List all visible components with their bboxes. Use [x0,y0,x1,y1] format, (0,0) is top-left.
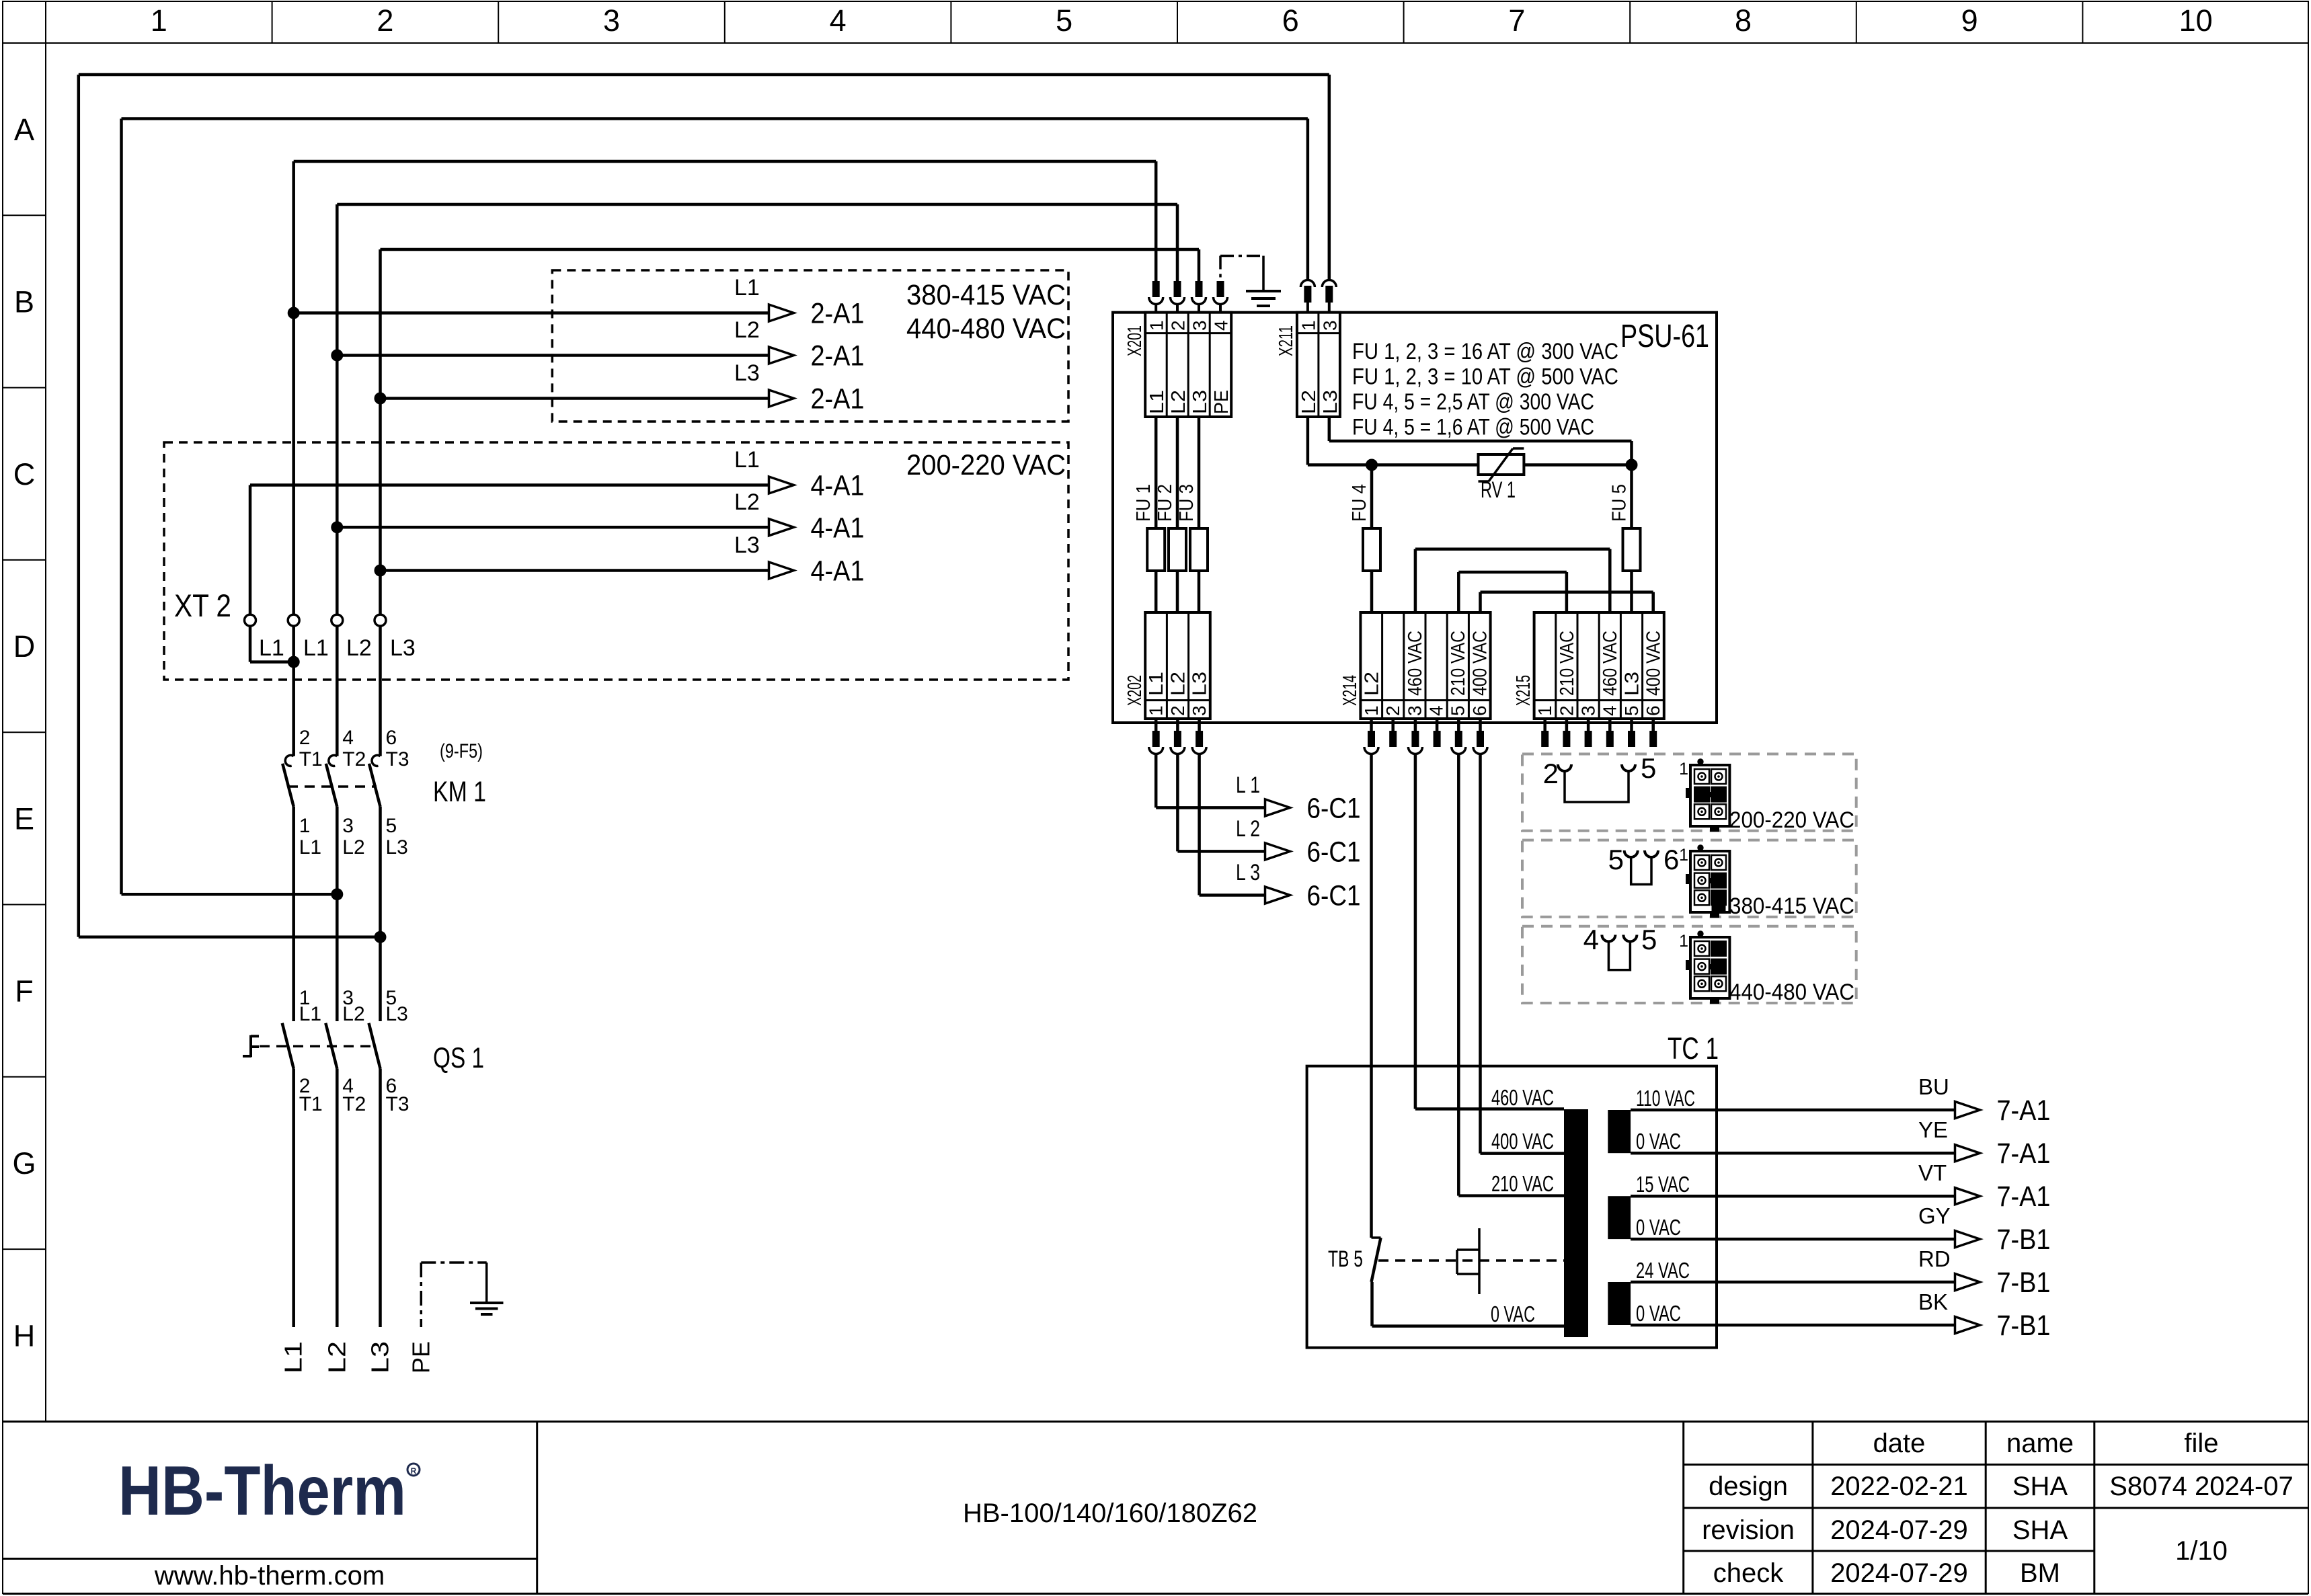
svg-text:TB 5: TB 5 [1328,1246,1363,1272]
svg-text:3: 3 [1189,320,1210,331]
svg-text:440-480 VAC: 440-480 VAC [906,313,1066,345]
svg-text:R: R [411,1466,417,1476]
svg-text:L1: L1 [734,275,760,301]
svg-text:revision: revision [1702,1515,1795,1545]
svg-text:460 VAC: 460 VAC [1600,631,1621,696]
svg-text:file: file [2184,1429,2218,1458]
svg-text:L3: L3 [734,532,760,558]
svg-text:4: 4 [342,727,354,749]
svg-text:X202: X202 [1124,675,1146,706]
svg-text:6-C1: 6-C1 [1307,836,1361,868]
svg-text:T2: T2 [342,1093,366,1115]
svg-text:10: 10 [2179,3,2213,38]
svg-text:7-A1: 7-A1 [1997,1094,2051,1127]
svg-text:210 VAC: 210 VAC [1557,631,1578,696]
svg-text:X214: X214 [1339,675,1361,706]
svg-text:5: 5 [1641,924,1657,955]
svg-text:(9-F5): (9-F5) [440,740,483,762]
svg-text:S8074 2024-07: S8074 2024-07 [2109,1472,2294,1501]
svg-text:6-C1: 6-C1 [1307,880,1361,912]
svg-text:1: 1 [151,3,167,38]
svg-text:2: 2 [1167,705,1188,716]
svg-text:4: 4 [1426,705,1447,716]
svg-text:T3: T3 [386,1093,409,1115]
svg-text:5: 5 [1448,705,1468,716]
svg-text:C: C [13,457,36,491]
svg-text:4: 4 [1600,705,1620,716]
svg-text:SHA: SHA [2012,1472,2068,1501]
svg-text:2: 2 [1543,758,1559,789]
svg-text:design: design [1709,1472,1788,1501]
svg-text:1/10: 1/10 [2175,1536,2228,1566]
svg-text:B: B [14,284,34,319]
svg-text:T3: T3 [386,748,409,770]
svg-text:210 VAC: 210 VAC [1448,631,1469,696]
svg-text:HB-100/140/160/180Z62: HB-100/140/160/180Z62 [963,1499,1257,1528]
svg-text:1: 1 [1679,932,1688,951]
svg-text:VT: VT [1918,1160,1947,1185]
svg-text:0 VAC: 0 VAC [1636,1301,1681,1326]
svg-text:L3: L3 [386,1003,408,1025]
svg-text:7-B1: 7-B1 [1997,1267,2051,1299]
svg-text:200-220 VAC: 200-220 VAC [1729,807,1854,833]
svg-text:380-415 VAC: 380-415 VAC [1729,893,1854,919]
svg-text:BM: BM [2020,1558,2060,1588]
svg-text:7-B1: 7-B1 [1997,1224,2051,1256]
svg-text:5: 5 [1608,844,1624,875]
svg-text:4: 4 [1211,320,1232,331]
svg-text:0 VAC: 0 VAC [1491,1302,1535,1326]
svg-text:5: 5 [1621,705,1642,716]
svg-text:7-A1: 7-A1 [1997,1138,2051,1170]
svg-text:L1: L1 [1146,672,1167,696]
svg-text:L 2: L 2 [1236,816,1260,842]
svg-text:1: 1 [1679,760,1688,779]
svg-text:SHA: SHA [2012,1515,2068,1545]
svg-text:440-480 VAC: 440-480 VAC [1729,980,1854,1005]
svg-text:FU 1, 2, 3 = 10 AT @ 500 VAC: FU 1, 2, 3 = 10 AT @ 500 VAC [1352,364,1618,390]
svg-text:4: 4 [830,3,847,38]
svg-text:3: 3 [1578,705,1599,716]
svg-text:400 VAC: 400 VAC [1491,1129,1554,1154]
svg-text:1: 1 [1679,846,1688,865]
svg-text:A: A [14,112,34,147]
svg-text:D: D [13,629,36,664]
svg-text:2-A1: 2-A1 [811,383,865,415]
svg-text:8: 8 [1735,3,1752,38]
svg-text:L3: L3 [386,836,408,859]
svg-text:FU 4, 5 = 2,5 AT @ 300 VAC: FU 4, 5 = 2,5 AT @ 300 VAC [1352,389,1594,415]
svg-text:G: G [12,1146,36,1181]
svg-text:RV 1: RV 1 [1481,477,1516,503]
svg-text:HB-Therm: HB-Therm [118,1452,406,1530]
svg-text:2: 2 [1168,320,1189,331]
svg-text:6-C1: 6-C1 [1307,792,1361,824]
svg-text:L2: L2 [734,317,760,343]
svg-text:L1: L1 [259,635,284,661]
svg-text:GY: GY [1918,1203,1951,1228]
svg-text:4: 4 [1583,924,1599,955]
svg-text:X215: X215 [1513,675,1534,706]
svg-text:9: 9 [1961,3,1978,38]
svg-text:4-A1: 4-A1 [811,512,865,544]
svg-text:L2: L2 [323,1341,350,1373]
svg-text:F: F [15,974,34,1008]
svg-text:name: name [2006,1429,2074,1458]
svg-text:date: date [1873,1429,1926,1458]
svg-text:380-415 VAC: 380-415 VAC [906,279,1066,311]
svg-text:24 VAC: 24 VAC [1636,1258,1690,1283]
svg-text:L2: L2 [734,489,760,515]
svg-text:L2: L2 [342,1003,364,1025]
svg-text:1: 1 [1298,320,1319,331]
svg-text:L1: L1 [1146,390,1168,414]
svg-text:5: 5 [1056,3,1072,38]
svg-text:4-A1: 4-A1 [811,555,865,588]
svg-text:www.hb-therm.com: www.hb-therm.com [154,1561,385,1591]
svg-text:QS 1: QS 1 [433,1042,484,1074]
svg-text:BU: BU [1918,1074,1949,1099]
svg-text:460 VAC: 460 VAC [1491,1085,1554,1110]
svg-text:0 VAC: 0 VAC [1636,1129,1681,1154]
svg-text:3: 3 [342,815,354,837]
svg-text:T2: T2 [342,748,366,770]
svg-text:PSU-61: PSU-61 [1620,319,1709,354]
svg-text:1: 1 [1146,320,1167,331]
svg-text:6: 6 [386,727,397,749]
svg-text:T1: T1 [299,748,323,770]
svg-text:FU 5: FU 5 [1609,484,1631,522]
svg-text:6: 6 [1282,3,1299,38]
svg-text:E: E [14,801,34,836]
svg-text:L1: L1 [299,1003,321,1025]
svg-text:460 VAC: 460 VAC [1405,631,1426,696]
svg-text:L3: L3 [1621,672,1643,696]
svg-text:PE: PE [407,1341,434,1373]
svg-text:FU 3: FU 3 [1176,484,1198,522]
svg-text:200-220 VAC: 200-220 VAC [906,449,1066,481]
svg-text:7: 7 [1508,3,1525,38]
svg-text:FU 1, 2, 3 = 16 AT @ 300 VAC: FU 1, 2, 3 = 16 AT @ 300 VAC [1352,339,1618,364]
svg-text:3: 3 [1189,705,1210,716]
svg-text:L3: L3 [1320,390,1341,414]
svg-text:FU 4: FU 4 [1349,484,1370,522]
svg-text:6: 6 [1469,705,1490,716]
svg-text:0 VAC: 0 VAC [1636,1215,1681,1240]
svg-text:FU 1: FU 1 [1133,484,1154,522]
svg-text:2022-02-21: 2022-02-21 [1830,1472,1968,1501]
svg-text:L3: L3 [366,1341,394,1373]
svg-text:210 VAC: 210 VAC [1491,1171,1554,1196]
svg-text:PE: PE [1211,390,1232,414]
svg-text:6: 6 [1663,844,1679,875]
svg-text:L1: L1 [303,635,329,661]
svg-text:L1: L1 [280,1341,307,1373]
svg-text:X201: X201 [1124,325,1146,356]
svg-text:L2: L2 [1361,672,1382,696]
svg-text:2-A1: 2-A1 [811,340,865,372]
svg-text:1: 1 [1361,705,1382,716]
svg-text:X211: X211 [1276,325,1297,356]
svg-text:2024-07-29: 2024-07-29 [1830,1558,1968,1588]
svg-text:FU 4, 5 = 1,6 AT @ 500 VAC: FU 4, 5 = 1,6 AT @ 500 VAC [1352,415,1594,440]
svg-text:L 1: L 1 [1236,772,1260,798]
svg-text:7-B1: 7-B1 [1997,1310,2051,1342]
svg-text:L 3: L 3 [1236,860,1260,885]
svg-text:2: 2 [299,727,311,749]
svg-text:FU 2: FU 2 [1154,484,1176,522]
svg-text:L2: L2 [1298,390,1320,414]
svg-text:2024-07-29: 2024-07-29 [1830,1515,1968,1545]
svg-text:L3: L3 [1189,672,1211,696]
svg-text:L2: L2 [1168,390,1189,414]
svg-text:L1: L1 [734,447,760,473]
svg-text:KM 1: KM 1 [433,776,486,808]
svg-text:2: 2 [1556,705,1577,716]
svg-text:4-A1: 4-A1 [811,470,865,502]
svg-text:110 VAC: 110 VAC [1636,1086,1695,1111]
svg-text:L2: L2 [346,635,372,661]
svg-text:2-A1: 2-A1 [811,298,865,330]
svg-text:H: H [13,1318,36,1353]
svg-text:15 VAC: 15 VAC [1636,1172,1690,1197]
svg-text:7-A1: 7-A1 [1997,1181,2051,1213]
svg-text:BK: BK [1918,1289,1948,1314]
svg-text:2: 2 [377,3,393,38]
svg-text:L2: L2 [1167,672,1189,696]
svg-text:L3: L3 [734,360,760,386]
svg-text:1: 1 [299,815,311,837]
svg-text:3: 3 [1404,705,1425,716]
svg-text:check: check [1713,1558,1784,1588]
svg-text:6: 6 [1643,705,1663,716]
svg-text:2: 2 [1382,705,1403,716]
svg-text:L1: L1 [299,836,321,859]
svg-text:L2: L2 [342,836,364,859]
svg-text:RD: RD [1918,1246,1951,1271]
svg-text:XT 2: XT 2 [174,588,231,623]
svg-text:L3: L3 [390,635,416,661]
svg-text:400 VAC: 400 VAC [1643,631,1665,696]
svg-text:L3: L3 [1189,390,1211,414]
svg-text:3: 3 [603,3,620,38]
svg-text:1: 1 [1534,705,1555,716]
svg-text:TC 1: TC 1 [1668,1031,1719,1066]
svg-text:1: 1 [1146,705,1167,716]
svg-text:5: 5 [1641,752,1656,784]
svg-text:T1: T1 [299,1093,323,1115]
svg-text:YE: YE [1918,1117,1948,1142]
svg-text:400 VAC: 400 VAC [1469,631,1491,696]
svg-text:3: 3 [1319,320,1340,331]
svg-text:5: 5 [386,815,397,837]
